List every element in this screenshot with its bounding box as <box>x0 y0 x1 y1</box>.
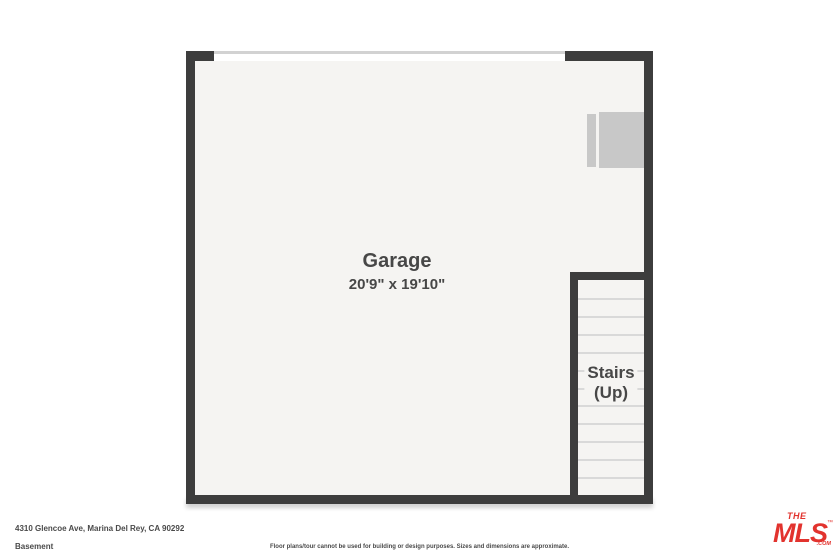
appliance-unit <box>599 112 644 168</box>
wall-bottom <box>186 495 653 504</box>
mls-logo-main: MLS™ .COM <box>773 520 833 547</box>
wall-left <box>186 51 195 504</box>
stair-tread <box>578 298 644 300</box>
stair-tread <box>578 423 644 425</box>
stairs-label-line2: (Up) <box>587 383 634 403</box>
stairs-label-line1: Stairs <box>587 363 634 383</box>
staircase: Stairs (Up) <box>578 280 644 495</box>
stair-tread <box>578 441 644 443</box>
address-text: 4310 Glencoe Ave, Marina Del Rey, CA 902… <box>15 524 184 533</box>
disclaimer-text: Floor plans/tour cannot be used for buil… <box>0 544 839 550</box>
room-label: Garage 20'9" x 19'10" <box>349 250 445 293</box>
mls-logo: THE MLS™ .COM <box>773 512 833 554</box>
room-dimensions: 20'9" x 19'10" <box>349 276 445 293</box>
stair-tread <box>578 459 644 461</box>
floorplan: Stairs (Up) Garage 20'9" x 19'10" <box>186 51 653 504</box>
stair-tread <box>578 316 644 318</box>
floorplan-page: Stairs (Up) Garage 20'9" x 19'10" 4310 G… <box>0 0 839 560</box>
garage-door-opening <box>214 51 565 61</box>
appliance-strip <box>587 114 596 167</box>
mls-logo-com: .COM <box>817 542 831 548</box>
stairs-label: Stairs (Up) <box>584 362 637 403</box>
mls-logo-tm: ™ <box>827 520 833 526</box>
stair-tread <box>578 477 644 479</box>
wall-top-left-stub <box>186 51 214 61</box>
wall-top-right <box>565 51 653 61</box>
stair-tread <box>578 405 644 407</box>
stairwell-wall-left <box>570 272 578 495</box>
stair-tread <box>578 352 644 354</box>
wall-right <box>644 51 653 504</box>
room-name: Garage <box>349 250 445 272</box>
stairwell-wall-top <box>570 272 644 280</box>
stair-tread <box>578 334 644 336</box>
